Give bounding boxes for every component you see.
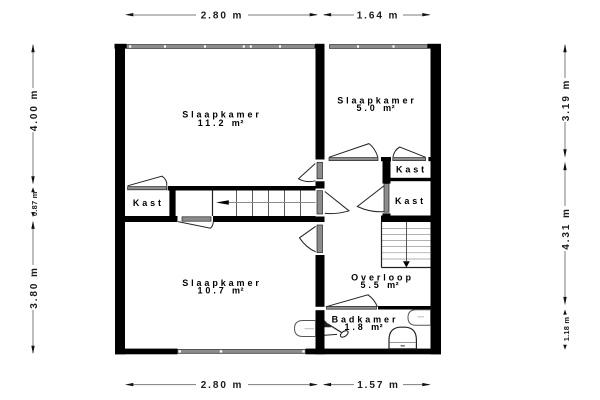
svg-text:10.7 m²: 10.7 m² bbox=[198, 285, 247, 295]
svg-text:1.64 m: 1.64 m bbox=[357, 11, 400, 22]
svg-text:Kast: Kast bbox=[396, 165, 427, 175]
svg-text:Kast: Kast bbox=[395, 196, 426, 206]
svg-text:3.19 m: 3.19 m bbox=[561, 79, 572, 122]
svg-text:2.80 m: 2.80 m bbox=[201, 380, 244, 391]
svg-text:5.5 m²: 5.5 m² bbox=[360, 280, 401, 290]
svg-text:11.2 m²: 11.2 m² bbox=[198, 118, 246, 128]
svg-text:3.80 m: 3.80 m bbox=[29, 266, 40, 309]
svg-text:5.0 m²: 5.0 m² bbox=[356, 103, 397, 113]
svg-text:1.8 m²: 1.8 m² bbox=[344, 322, 385, 332]
svg-text:1.57 m: 1.57 m bbox=[357, 380, 400, 391]
svg-text:2.80 m: 2.80 m bbox=[201, 11, 244, 22]
svg-text:Kast: Kast bbox=[133, 198, 164, 208]
svg-text:1.18 m: 1.18 m bbox=[562, 317, 571, 342]
svg-text:4.00 m: 4.00 m bbox=[29, 89, 40, 132]
svg-text:4.31 m: 4.31 m bbox=[561, 207, 572, 250]
svg-text:0.87 m: 0.87 m bbox=[30, 191, 39, 216]
